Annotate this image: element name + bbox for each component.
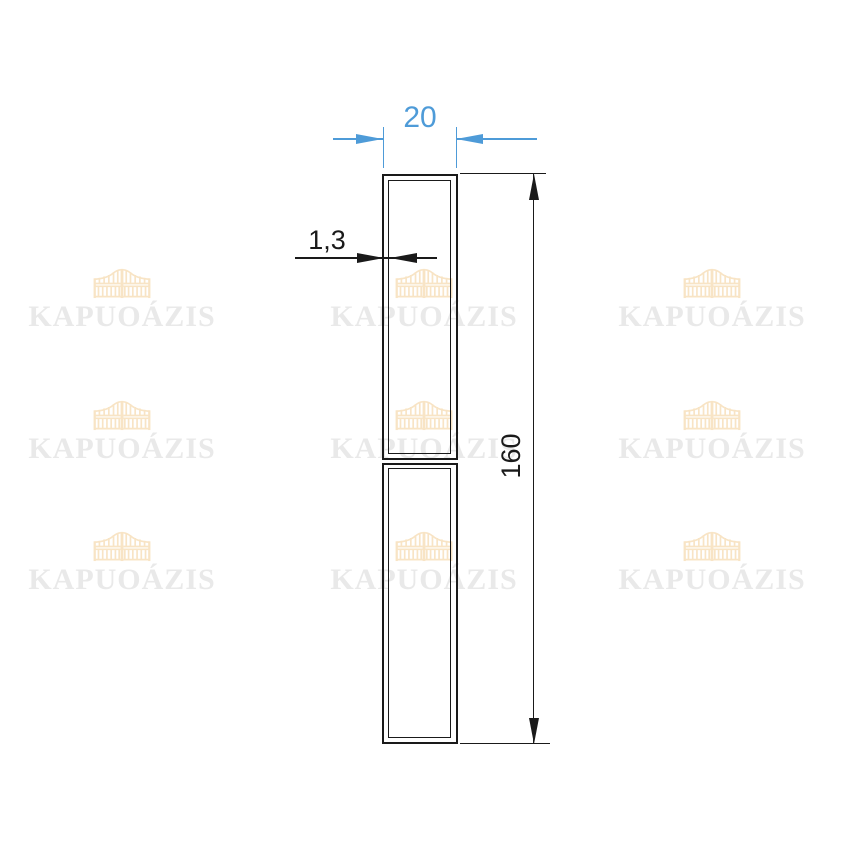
profile-upper-tube-inner-wall <box>388 180 452 454</box>
profile-drawing: 20 1,3 160 <box>0 0 856 856</box>
wall-dimension-label: 1,3 <box>297 225 357 256</box>
wall-arrowhead-left <box>357 253 384 263</box>
width-dimension-label: 20 <box>390 101 450 135</box>
height-dimension-line <box>533 174 535 744</box>
width-arrowhead-left <box>356 134 383 144</box>
height-arrowhead-bottom <box>529 718 539 744</box>
profile-lower-tube-inner-wall <box>388 468 452 738</box>
height-dimension-label: 160 <box>496 416 526 496</box>
technical-drawing-page: KAPUOÁZIS <box>0 0 856 856</box>
height-arrowhead-top <box>529 174 539 200</box>
width-arrowhead-right <box>456 134 483 144</box>
wall-arrowhead-right <box>390 253 417 263</box>
